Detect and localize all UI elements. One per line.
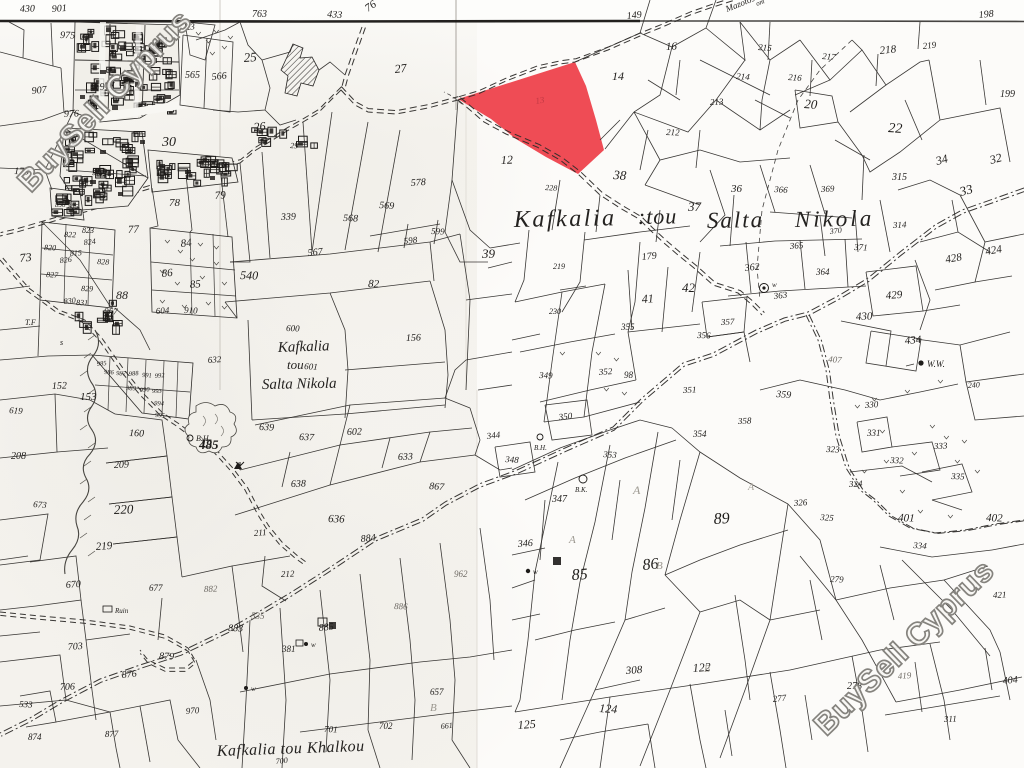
svg-text:353: 353: [602, 449, 618, 460]
svg-text:W.W.: W.W.: [927, 359, 945, 369]
svg-text:701: 701: [324, 724, 338, 734]
svg-text:Kafkalia: Kafkalia: [277, 338, 330, 356]
svg-text:569: 569: [379, 200, 395, 212]
svg-text:364: 364: [815, 267, 830, 277]
svg-text:430: 430: [856, 310, 873, 323]
svg-text:220: 220: [114, 501, 135, 517]
svg-text:850: 850: [55, 201, 66, 209]
svg-text:975: 975: [60, 30, 75, 42]
svg-text:820: 820: [44, 243, 56, 252]
svg-text:330: 330: [863, 399, 879, 410]
svg-text:Salta Nikola: Salta Nikola: [262, 376, 337, 393]
svg-text:989: 989: [126, 385, 137, 392]
svg-text:324: 324: [848, 479, 863, 490]
svg-text:677: 677: [149, 583, 163, 593]
svg-text:876: 876: [121, 668, 137, 681]
svg-text:830: 830: [63, 296, 76, 306]
svg-text:578: 578: [410, 177, 426, 189]
svg-text::tou: :tou: [638, 203, 678, 229]
svg-text:A: A: [568, 534, 576, 546]
svg-text:149: 149: [626, 9, 642, 22]
svg-text:407: 407: [828, 354, 843, 365]
svg-text:A: A: [747, 482, 755, 493]
svg-text:344: 344: [485, 430, 501, 442]
svg-text:347: 347: [551, 494, 568, 505]
svg-text:402: 402: [986, 512, 1003, 525]
svg-text:w: w: [533, 568, 538, 576]
svg-text:25: 25: [243, 49, 258, 65]
svg-text:357: 357: [720, 317, 735, 328]
svg-text:153: 153: [80, 391, 97, 403]
svg-text:73: 73: [19, 250, 32, 265]
svg-text:706: 706: [60, 681, 75, 693]
svg-text:214: 214: [736, 71, 751, 82]
svg-text:79: 79: [214, 189, 226, 202]
svg-text:89: 89: [713, 510, 730, 528]
svg-text:41: 41: [641, 291, 654, 306]
svg-text:831: 831: [76, 298, 88, 307]
svg-text:619: 619: [9, 405, 24, 416]
svg-text:901: 901: [51, 3, 67, 15]
svg-text:829: 829: [81, 284, 93, 293]
svg-text:661: 661: [440, 721, 453, 731]
svg-text:604: 604: [155, 305, 170, 316]
svg-text:401: 401: [898, 512, 915, 525]
svg-text:485: 485: [198, 437, 219, 452]
svg-text:429: 429: [885, 289, 903, 302]
svg-text:535: 535: [251, 611, 265, 621]
svg-text:883: 883: [228, 623, 243, 635]
svg-text:828: 828: [97, 257, 110, 267]
svg-text:199: 199: [1000, 89, 1015, 100]
svg-text:763: 763: [252, 9, 267, 20]
svg-text:179: 179: [641, 250, 657, 263]
svg-text:B.K.: B.K.: [575, 486, 588, 494]
svg-text:209: 209: [114, 459, 129, 471]
svg-text:311: 311: [943, 714, 957, 724]
svg-text:987: 987: [116, 370, 127, 378]
svg-text:Kafkalia: Kafkalia: [513, 205, 617, 233]
svg-text:824: 824: [83, 237, 96, 247]
svg-text:82: 82: [368, 278, 380, 290]
svg-text:566: 566: [211, 70, 227, 83]
svg-text:992: 992: [154, 372, 165, 380]
svg-text:350: 350: [557, 411, 573, 423]
svg-text:633: 633: [398, 451, 413, 463]
svg-text:369: 369: [820, 184, 835, 195]
svg-text:348: 348: [504, 454, 520, 465]
svg-text:355: 355: [620, 322, 635, 332]
svg-text:365: 365: [788, 240, 804, 251]
svg-text:673: 673: [33, 499, 48, 510]
svg-text:219: 219: [922, 40, 937, 51]
svg-text:w: w: [251, 685, 256, 693]
svg-text:16: 16: [666, 41, 678, 53]
svg-text:20: 20: [804, 96, 819, 112]
svg-text:212: 212: [281, 569, 295, 579]
svg-text:323: 323: [825, 444, 840, 455]
svg-text:637: 637: [299, 432, 315, 444]
svg-text:30: 30: [161, 135, 176, 150]
svg-text:598: 598: [403, 235, 418, 246]
svg-text:886: 886: [394, 601, 408, 611]
svg-text:602: 602: [347, 426, 362, 438]
svg-text:14: 14: [612, 69, 624, 83]
svg-text:240: 240: [968, 380, 981, 390]
svg-text:351: 351: [682, 385, 697, 395]
svg-text:T.F: T.F: [25, 318, 36, 327]
svg-text:827: 827: [46, 270, 60, 280]
svg-text:371: 371: [853, 242, 868, 252]
svg-text:212: 212: [666, 127, 680, 137]
svg-text:325: 325: [819, 512, 835, 523]
svg-text:38: 38: [612, 167, 628, 183]
svg-text:994: 994: [154, 400, 165, 408]
svg-text:540: 540: [240, 268, 258, 283]
svg-text:349: 349: [538, 370, 553, 381]
svg-text:991: 991: [142, 372, 152, 379]
svg-text:Ruin: Ruin: [114, 607, 129, 615]
svg-text:85: 85: [189, 278, 201, 291]
svg-text:213: 213: [710, 97, 724, 107]
svg-text:874: 874: [28, 732, 42, 742]
svg-text:230: 230: [549, 307, 561, 316]
svg-text:333: 333: [933, 441, 948, 452]
svg-text:339: 339: [280, 211, 296, 223]
svg-text:632: 632: [207, 354, 222, 365]
svg-text:700: 700: [275, 756, 288, 766]
svg-text:363: 363: [772, 290, 788, 302]
svg-text:815: 815: [70, 248, 83, 258]
svg-text:877: 877: [105, 729, 119, 739]
svg-text:77: 77: [128, 224, 140, 236]
svg-text:822: 822: [64, 230, 76, 239]
svg-text:636: 636: [328, 513, 345, 526]
svg-text:986: 986: [104, 369, 115, 376]
svg-text:346: 346: [516, 538, 533, 550]
svg-text:A: A: [632, 483, 641, 497]
svg-text:670: 670: [65, 579, 81, 591]
svg-text:334: 334: [912, 540, 928, 551]
svg-text:315: 315: [891, 172, 907, 183]
svg-text:359: 359: [775, 389, 792, 401]
svg-text:907: 907: [31, 84, 48, 97]
svg-text:tou: tou: [287, 357, 304, 372]
svg-text:211: 211: [253, 527, 267, 538]
svg-text:26: 26: [253, 119, 266, 134]
svg-text:216: 216: [788, 72, 803, 83]
svg-text:215: 215: [758, 42, 773, 53]
svg-text:882: 882: [204, 584, 218, 594]
svg-text:962: 962: [454, 569, 468, 579]
svg-text:568: 568: [343, 213, 358, 225]
svg-text:335: 335: [950, 471, 965, 482]
svg-text:990: 990: [140, 386, 151, 394]
svg-text:567: 567: [307, 246, 324, 259]
svg-text:124: 124: [599, 701, 618, 716]
svg-text:160: 160: [129, 428, 144, 440]
svg-text:352: 352: [597, 366, 613, 377]
svg-text:308: 308: [624, 664, 643, 677]
svg-text:152: 152: [52, 380, 67, 392]
svg-text:370: 370: [828, 226, 842, 236]
svg-text:B: B: [430, 702, 437, 714]
svg-text:985: 985: [96, 360, 107, 368]
svg-text:430: 430: [20, 3, 35, 15]
svg-text:218: 218: [879, 43, 897, 57]
svg-text:37: 37: [687, 199, 702, 214]
svg-text:354: 354: [692, 429, 707, 439]
svg-text:356: 356: [696, 330, 711, 341]
svg-text:w: w: [311, 641, 316, 649]
svg-text:36: 36: [730, 183, 743, 195]
svg-text:823: 823: [82, 226, 94, 235]
svg-text:879: 879: [159, 651, 174, 663]
svg-text:366: 366: [773, 184, 789, 195]
svg-text:332: 332: [889, 455, 904, 466]
svg-text:995: 995: [155, 412, 166, 419]
svg-text:156: 156: [406, 332, 421, 344]
svg-text:639: 639: [259, 422, 274, 434]
svg-text:85: 85: [571, 566, 588, 584]
svg-text:988: 988: [128, 370, 139, 378]
svg-text:358: 358: [737, 416, 752, 427]
svg-text:381: 381: [281, 644, 296, 654]
svg-text:533: 533: [19, 699, 33, 709]
svg-text:601: 601: [304, 361, 318, 372]
svg-text:219: 219: [553, 262, 565, 271]
svg-text:638: 638: [291, 478, 306, 490]
svg-text:86: 86: [161, 267, 174, 280]
svg-text:208: 208: [11, 451, 26, 462]
svg-text:565: 565: [185, 70, 200, 81]
svg-text:84: 84: [180, 237, 193, 250]
svg-text:657: 657: [430, 687, 444, 697]
svg-text:433: 433: [327, 9, 343, 21]
svg-text:228: 228: [545, 183, 558, 193]
svg-text:884: 884: [360, 532, 376, 545]
svg-text:702: 702: [379, 721, 393, 731]
svg-text:326: 326: [792, 497, 808, 508]
svg-text:875: 875: [68, 203, 79, 211]
svg-text:885: 885: [318, 621, 334, 634]
svg-text:279: 279: [830, 574, 844, 584]
svg-text:331: 331: [866, 428, 881, 438]
svg-text:s: s: [60, 338, 63, 347]
svg-text:404: 404: [1002, 674, 1018, 687]
svg-text:78: 78: [169, 197, 181, 209]
svg-text:277: 277: [772, 693, 787, 704]
svg-text:217: 217: [822, 51, 837, 62]
svg-text:42: 42: [682, 280, 696, 295]
svg-text:22: 22: [888, 121, 903, 137]
svg-text:970: 970: [185, 705, 200, 716]
svg-text:600: 600: [286, 323, 300, 333]
svg-text:219: 219: [95, 540, 113, 553]
svg-text:B: B: [704, 664, 710, 675]
svg-text:910: 910: [184, 305, 198, 315]
svg-text:703: 703: [67, 641, 83, 653]
svg-text:88: 88: [116, 288, 128, 302]
svg-text:599: 599: [431, 226, 445, 236]
svg-text:B.H.: B.H.: [534, 444, 547, 452]
svg-text:B: B: [656, 560, 663, 572]
svg-text:993: 993: [152, 388, 163, 395]
svg-text:967: 967: [104, 306, 118, 316]
svg-text:314: 314: [892, 220, 907, 231]
svg-text:Salta: Salta: [707, 207, 765, 233]
svg-text:198: 198: [978, 8, 994, 21]
svg-text:39: 39: [481, 246, 496, 261]
svg-text:12: 12: [501, 153, 513, 167]
svg-text:950: 950: [92, 167, 107, 179]
svg-text:434: 434: [904, 334, 922, 347]
svg-text:29: 29: [290, 141, 299, 151]
svg-text:125: 125: [517, 717, 536, 732]
svg-text:867: 867: [429, 481, 446, 493]
svg-text:98: 98: [624, 370, 634, 380]
svg-text:421: 421: [993, 590, 1007, 600]
svg-text:362: 362: [743, 261, 760, 274]
svg-text:w: w: [772, 281, 777, 289]
